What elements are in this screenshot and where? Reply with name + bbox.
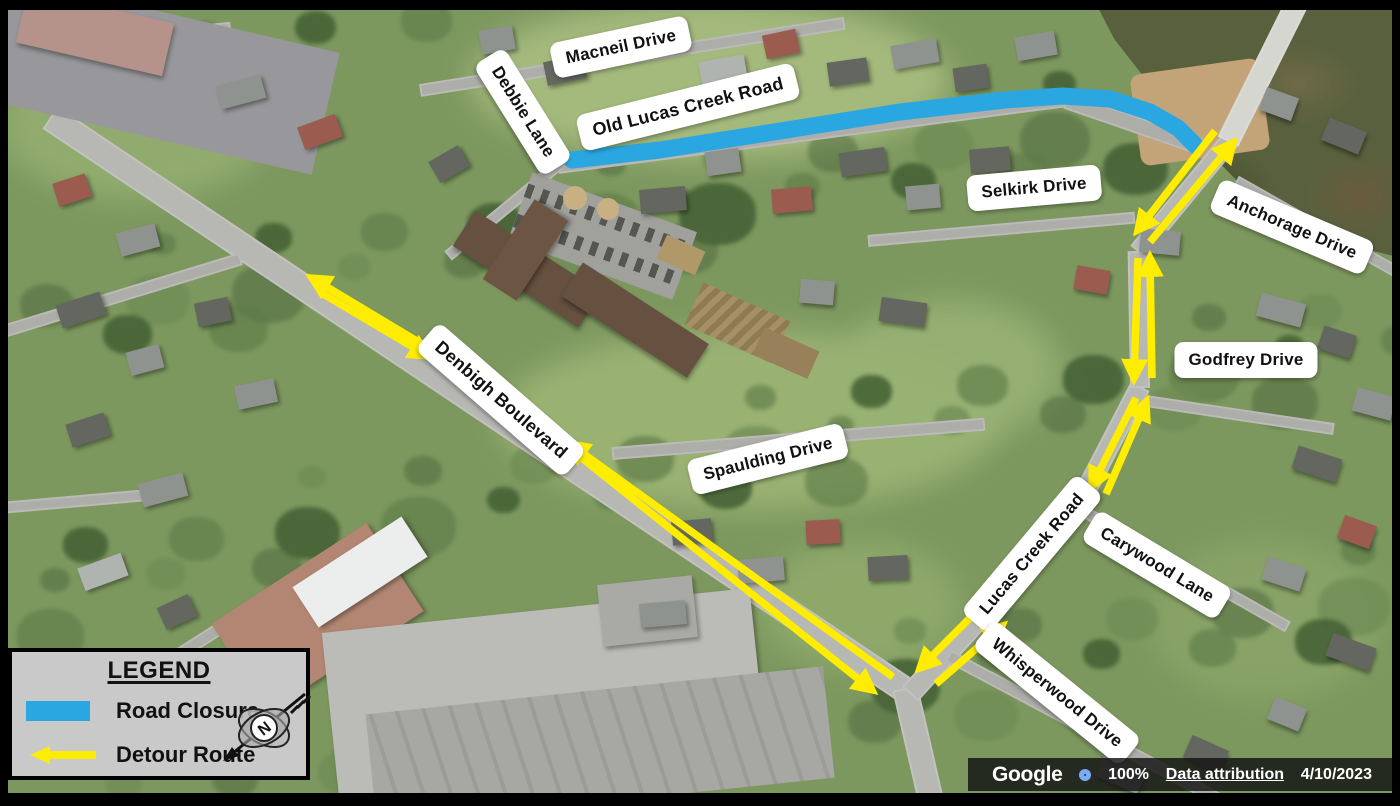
house-roof: [805, 519, 840, 545]
zoom-level: 100%: [1108, 766, 1149, 784]
tree-blob: [851, 375, 892, 408]
house-roof: [138, 472, 189, 507]
tree-blob: [954, 690, 1018, 741]
house-roof: [839, 147, 888, 177]
ballfield: [597, 198, 619, 220]
house-roof: [671, 518, 713, 545]
tree-blob: [487, 487, 520, 513]
orbit-ring-icon[interactable]: [1079, 769, 1091, 781]
tree-blob: [1083, 639, 1120, 669]
tree-blob: [1189, 629, 1236, 667]
google-logo: Google: [992, 763, 1063, 787]
road-denbigh-boulevard-south: [892, 685, 948, 806]
house-roof: [1014, 31, 1058, 62]
tree-blob: [40, 568, 70, 592]
tree-blob: [745, 385, 776, 410]
house-roof: [704, 148, 741, 176]
tree-blob: [848, 700, 902, 743]
tree-blob: [146, 558, 186, 590]
tree-blob: [1381, 325, 1400, 356]
street-label-godfrey-drive: Godfrey Drive: [1174, 342, 1317, 378]
attribution-bar: Google 100% Data attribution 4/10/2023: [968, 758, 1392, 791]
ballfield: [563, 186, 587, 210]
tree-blob: [295, 11, 336, 44]
house-roof: [1291, 445, 1342, 482]
detour-arrow-icon: [26, 744, 102, 766]
map-canvas: Macneil Drive Debbie Lane Old Lucas Cree…: [0, 0, 1400, 806]
house-roof: [1317, 325, 1357, 358]
house-roof: [799, 279, 835, 306]
tree-blob: [404, 456, 442, 486]
house-roof: [737, 556, 785, 584]
house-roof: [867, 555, 908, 581]
tree-blob: [1298, 294, 1342, 329]
house-roof: [1073, 265, 1111, 295]
north-compass-icon: N: [217, 688, 317, 772]
legend-box: LEGEND Road Closure Detour Route N: [8, 648, 310, 780]
house-roof: [905, 184, 941, 211]
imagery-date: 4/10/2023: [1301, 766, 1372, 784]
legend-title: LEGEND: [12, 657, 306, 685]
tree-blob: [1040, 396, 1086, 433]
house-roof: [65, 412, 110, 447]
house-roof: [639, 186, 687, 214]
house-roof: [771, 186, 813, 213]
figure-frame: Macneil Drive Debbie Lane Old Lucas Cree…: [0, 0, 1400, 806]
tree-blob: [1192, 304, 1226, 331]
tree-blob: [169, 517, 224, 561]
house-roof: [428, 145, 469, 183]
data-attribution-link[interactable]: Data attribution: [1166, 766, 1284, 784]
house-roof: [1267, 697, 1308, 732]
road-residential: [0, 489, 152, 514]
tree-blob: [957, 365, 1008, 406]
house-roof: [234, 378, 278, 410]
tree-blob: [361, 213, 408, 251]
tree-blob: [1106, 598, 1158, 640]
road-lucas-creek: [1128, 251, 1150, 388]
house-roof: [969, 146, 1011, 173]
tree-blob: [338, 254, 370, 280]
tree-blob: [298, 466, 326, 488]
house-roof: [1352, 387, 1397, 421]
house-roof: [639, 600, 687, 628]
house-roof: [952, 64, 989, 92]
tree-blob: [914, 122, 974, 170]
house-roof: [1256, 292, 1307, 327]
road-selkirk-drive: [867, 212, 1135, 247]
road-closure-swatch: [26, 701, 90, 721]
house-roof: [157, 594, 198, 630]
house-roof: [1139, 228, 1181, 255]
tree-blob: [63, 527, 108, 563]
tree-blob: [401, 1, 452, 42]
tree-blob: [894, 618, 926, 644]
